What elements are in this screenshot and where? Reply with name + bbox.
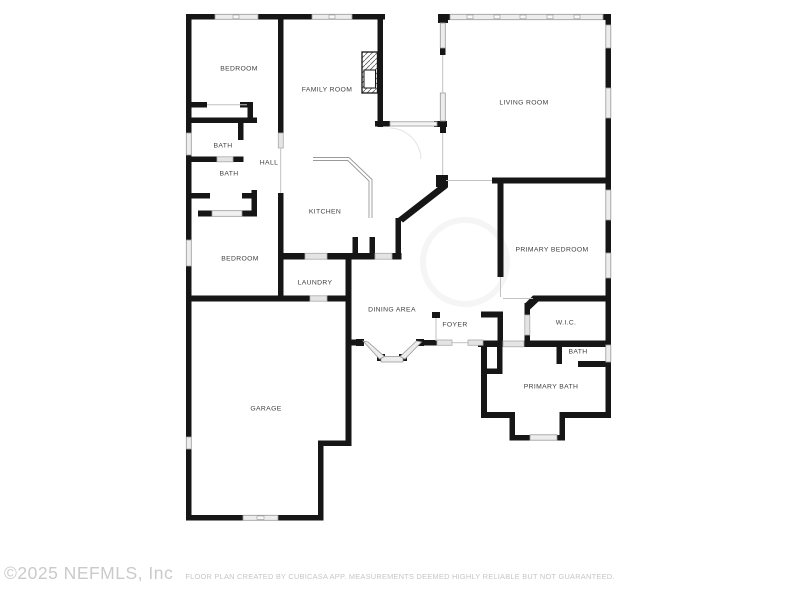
room-label-hall: HALL — [260, 160, 278, 167]
room-label-bath-3: BATH — [568, 349, 587, 356]
windows — [186, 14, 611, 520]
room-label-dining-area: DINING AREA — [368, 307, 416, 314]
room-label-kitchen: KITCHEN — [309, 209, 341, 216]
disclaimer-text: FLOOR PLAN CREATED BY CUBICASA APP. MEAS… — [0, 572, 800, 581]
floorplan-page: BEDROOM FAMILY ROOM LIVING ROOM BATH BAT… — [0, 0, 800, 600]
room-label-garage: GARAGE — [250, 406, 281, 413]
fireplace — [362, 52, 378, 93]
room-label-bath-1: BATH — [213, 143, 232, 150]
room-label-primary-bedroom: PRIMARY BEDROOM — [516, 247, 589, 254]
watermark-ring — [423, 220, 507, 304]
walls — [186, 14, 611, 521]
room-label-laundry: LAUNDRY — [298, 280, 333, 287]
room-label-foyer: FOYER — [442, 322, 467, 329]
room-label-wic: W.I.C. — [556, 320, 577, 327]
room-label-living-room: LIVING ROOM — [499, 100, 548, 107]
room-label-bedroom-2: BEDROOM — [221, 256, 259, 263]
room-label-primary-bath: PRIMARY BATH — [524, 384, 578, 391]
floorplan-svg — [0, 0, 800, 600]
room-label-bath-2: BATH — [219, 171, 238, 178]
room-label-family-room: FAMILY ROOM — [302, 87, 352, 94]
room-label-bedroom-1: BEDROOM — [220, 66, 258, 73]
